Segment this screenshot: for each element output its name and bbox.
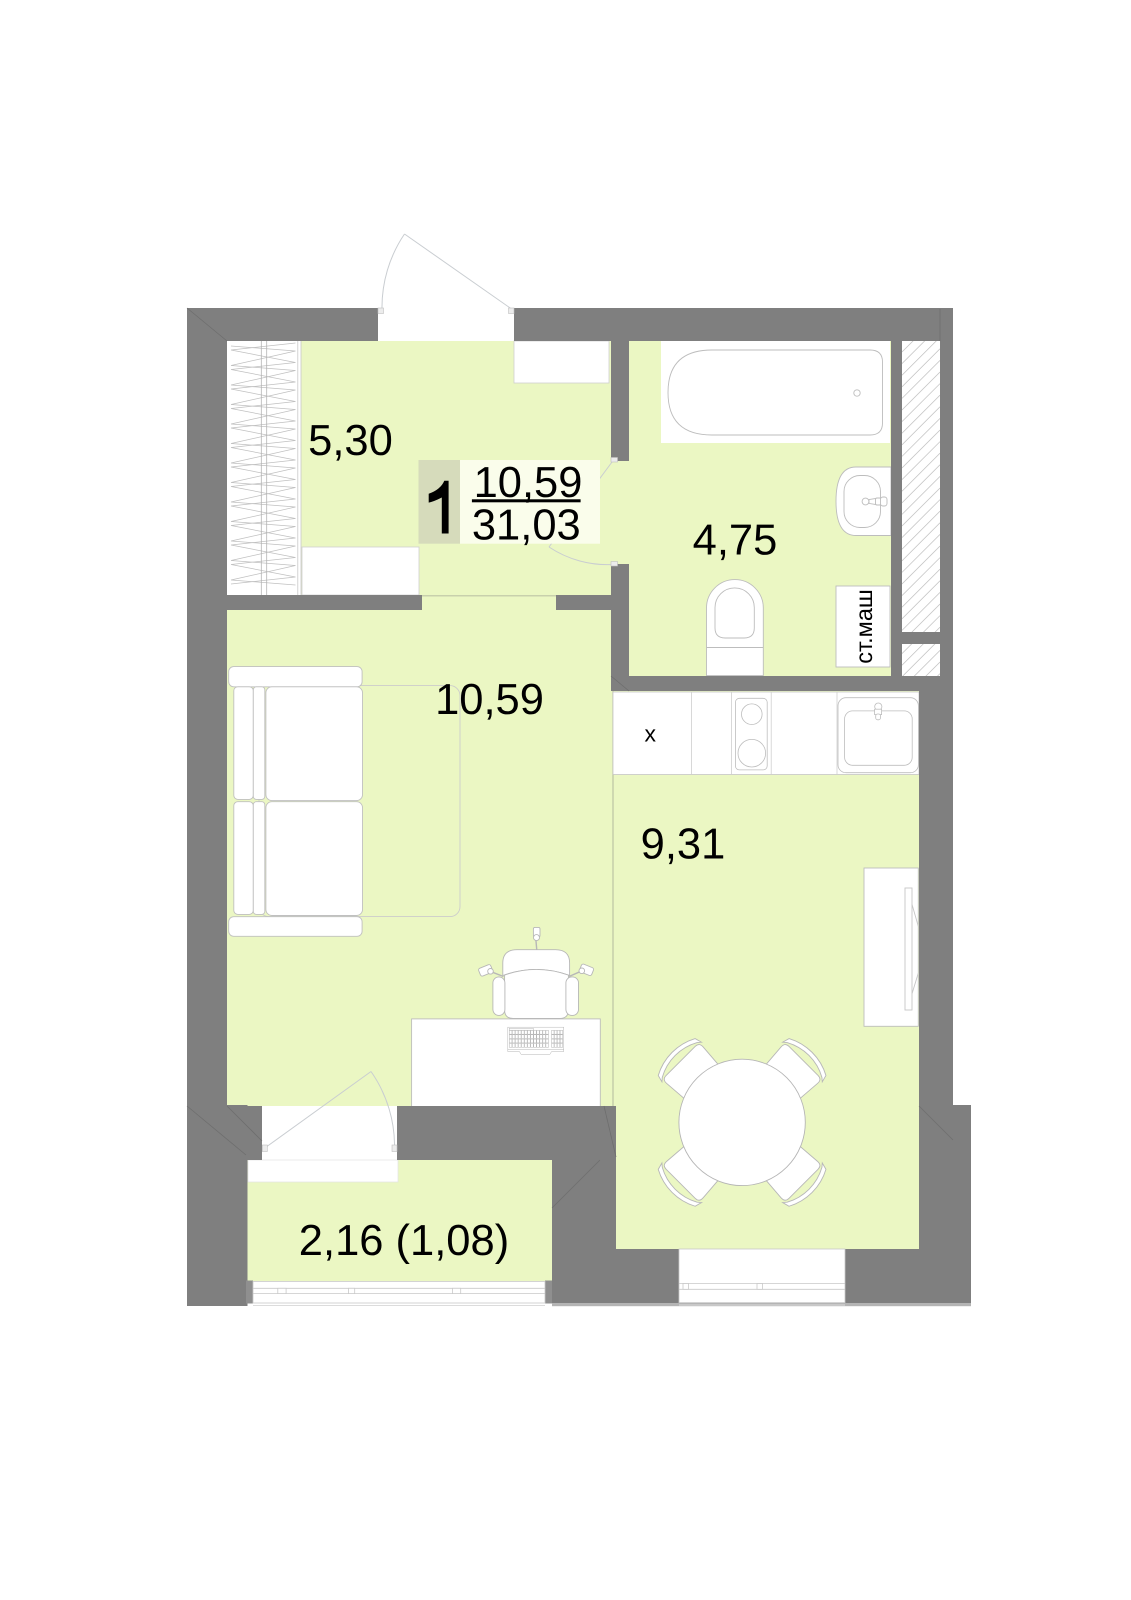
svg-text:ст.маш: ст.маш [851, 589, 877, 664]
svg-text:9,31: 9,31 [641, 821, 726, 869]
svg-text:10,59: 10,59 [435, 676, 544, 724]
svg-text:4,75: 4,75 [693, 517, 778, 565]
svg-text:31,03: 31,03 [472, 501, 581, 549]
svg-text:2,16 (1,08): 2,16 (1,08) [299, 1217, 509, 1265]
svg-text:x: x [645, 721, 657, 747]
svg-text:5,30: 5,30 [308, 417, 393, 465]
